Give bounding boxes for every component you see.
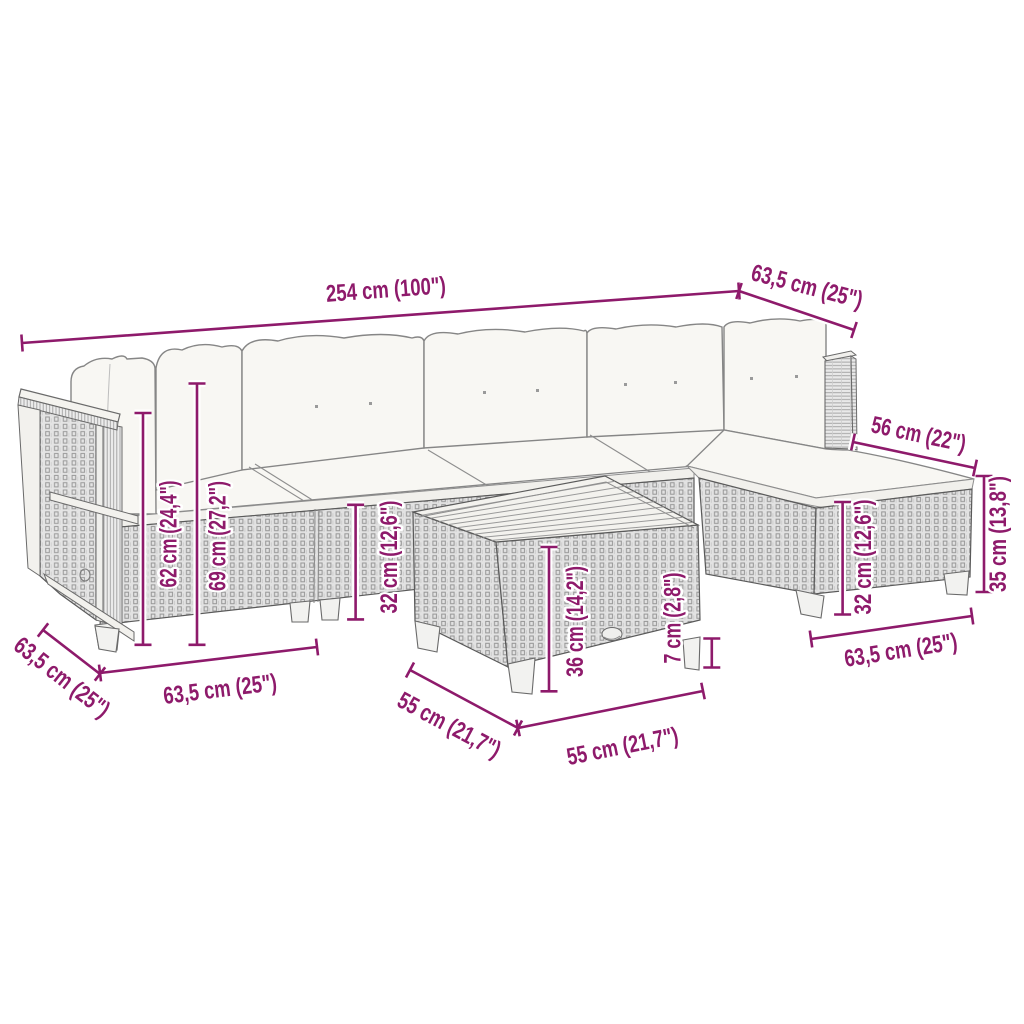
svg-text:69 cm (27,2"): 69 cm (27,2") <box>205 481 232 591</box>
svg-text:7 cm (2,8"): 7 cm (2,8") <box>660 573 687 664</box>
svg-text:55 cm (21,7"): 55 cm (21,7") <box>564 722 680 771</box>
svg-text:35 cm (13,8"): 35 cm (13,8") <box>985 476 1012 592</box>
svg-text:32 cm (12,6"): 32 cm (12,6") <box>850 500 877 615</box>
svg-text:55 cm (21,7"): 55 cm (21,7") <box>393 687 505 764</box>
svg-text:62 cm (24,4"): 62 cm (24,4") <box>156 481 183 588</box>
svg-text:32 cm (12,6"): 32 cm (12,6") <box>376 501 403 614</box>
svg-text:63,5 cm (25"): 63,5 cm (25") <box>748 259 865 314</box>
svg-text:63,5 cm (25"): 63,5 cm (25") <box>162 669 278 710</box>
svg-text:254 cm (100"): 254 cm (100") <box>325 272 447 308</box>
svg-text:36 cm (14,2"): 36 cm (14,2") <box>562 566 589 677</box>
